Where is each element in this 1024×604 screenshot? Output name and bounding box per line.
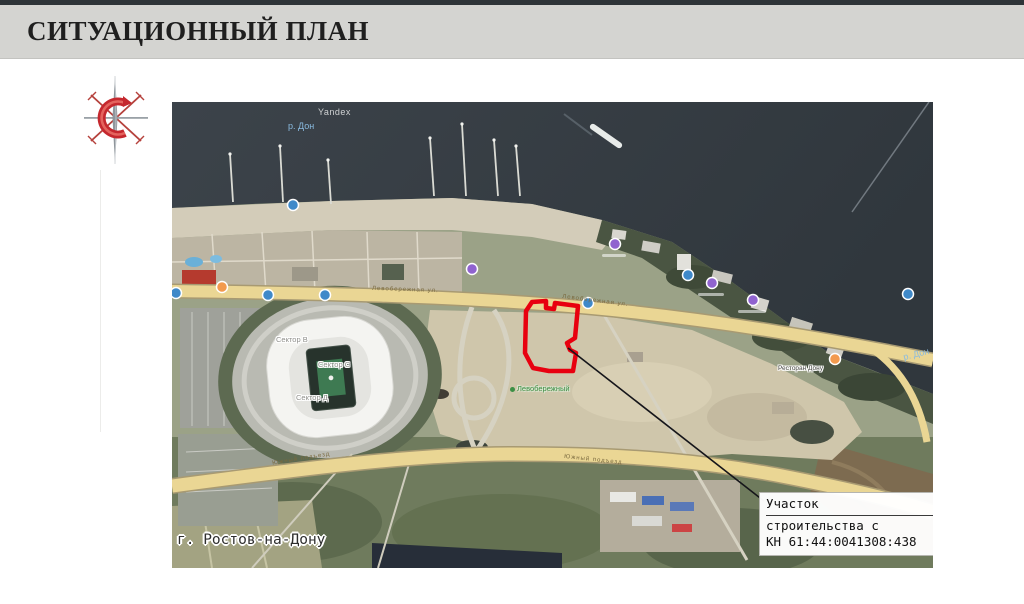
transit-poi-icon	[320, 290, 331, 301]
pier-poi-icon	[288, 200, 299, 211]
restaurant-poi-icon	[610, 239, 621, 250]
tree-icon	[510, 387, 515, 392]
transit-poi-icon	[172, 288, 182, 299]
plot-callout-box: Участок строительства с КН 61:44:0041308…	[759, 492, 933, 556]
callout-line-3: КН 61:44:0041308:438	[766, 534, 933, 551]
attraction-poi-icon	[217, 282, 228, 293]
page-title: СИТУАЦИОННЫЙ ПЛАН	[27, 16, 369, 47]
park-label: Левобережный	[510, 384, 570, 393]
stadium-sector-label: Сектор Д	[296, 393, 328, 402]
callout-line-1: Участок	[766, 496, 933, 516]
transit-poi-icon	[263, 290, 274, 301]
transit-poi-icon	[903, 289, 914, 300]
restaurant-poi-icon	[748, 295, 759, 306]
river-label: р. Дон	[288, 121, 314, 131]
callout-line-2: строительства с	[766, 518, 933, 535]
situation-plan-slide: СИТУАЦИОННЫЙ ПЛАН	[0, 0, 1024, 604]
restaurant-poi-icon	[830, 354, 841, 365]
slide-header: СИТУАЦИОННЫЙ ПЛАН	[0, 5, 1024, 59]
satellite-map: Yandex р. Дон р. Дон Сектор В Сектор С С…	[172, 102, 933, 568]
company-logo-icon	[84, 74, 148, 166]
placeholder-guide-line	[100, 170, 101, 432]
construction-yard	[600, 480, 740, 552]
stadium-sector-label: Сектор С	[318, 360, 350, 369]
restaurant-label: Ресторан Дону	[778, 365, 823, 372]
city-label: г. Ростов-на-Дону	[177, 532, 325, 548]
stadium-sector-label: Сектор В	[276, 335, 308, 344]
restaurant-poi-icon	[707, 278, 718, 289]
transit-poi-icon	[683, 270, 694, 281]
map-watermark: Yandex	[318, 107, 351, 117]
hotel-poi-icon	[467, 264, 478, 275]
